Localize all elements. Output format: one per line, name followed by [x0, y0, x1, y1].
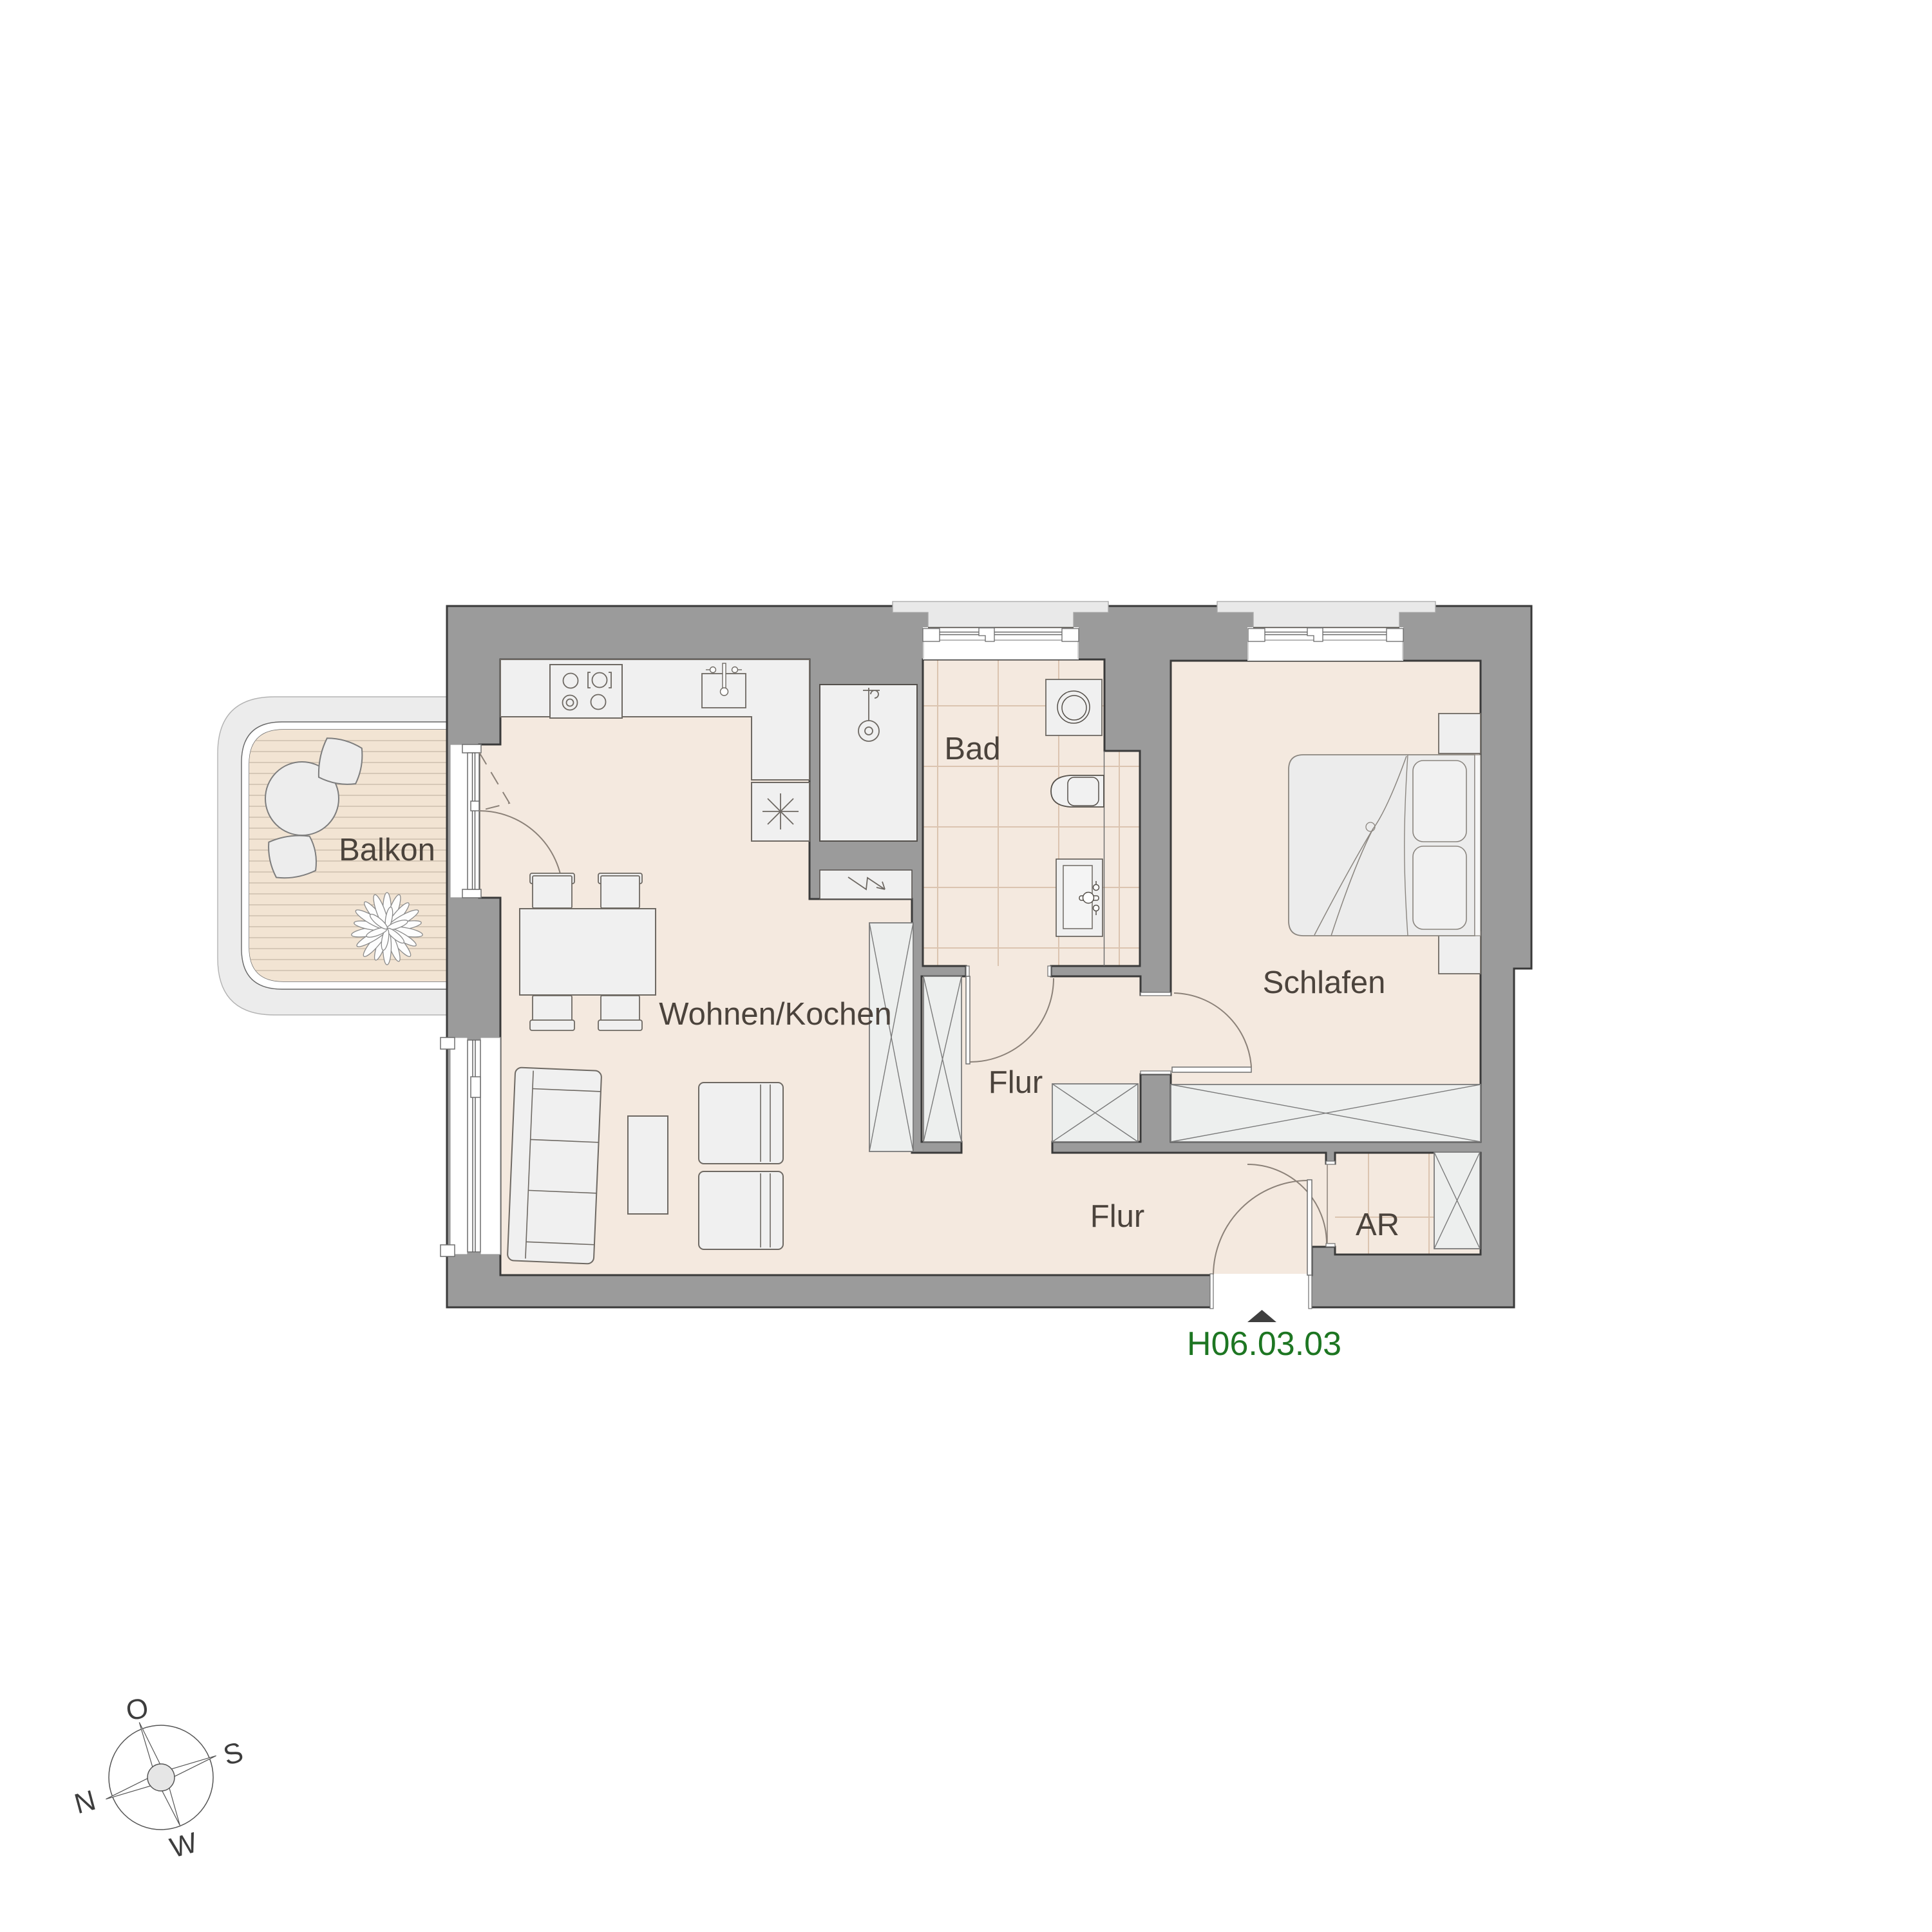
svg-text:Flur: Flur: [989, 1065, 1043, 1100]
svg-text:AR: AR: [1356, 1207, 1399, 1242]
svg-text:S: S: [220, 1736, 247, 1772]
svg-text:Wohnen/Kochen: Wohnen/Kochen: [659, 997, 891, 1032]
svg-text:Flur: Flur: [1090, 1199, 1144, 1234]
svg-text:Schlafen: Schlafen: [1263, 965, 1386, 1000]
svg-text:N: N: [71, 1785, 99, 1821]
svg-text:H06.03.03: H06.03.03: [1187, 1325, 1341, 1363]
svg-text:Bad: Bad: [944, 732, 1000, 766]
svg-text:O: O: [124, 1692, 151, 1727]
svg-text:W: W: [167, 1826, 201, 1864]
svg-text:Balkon: Balkon: [339, 833, 435, 867]
